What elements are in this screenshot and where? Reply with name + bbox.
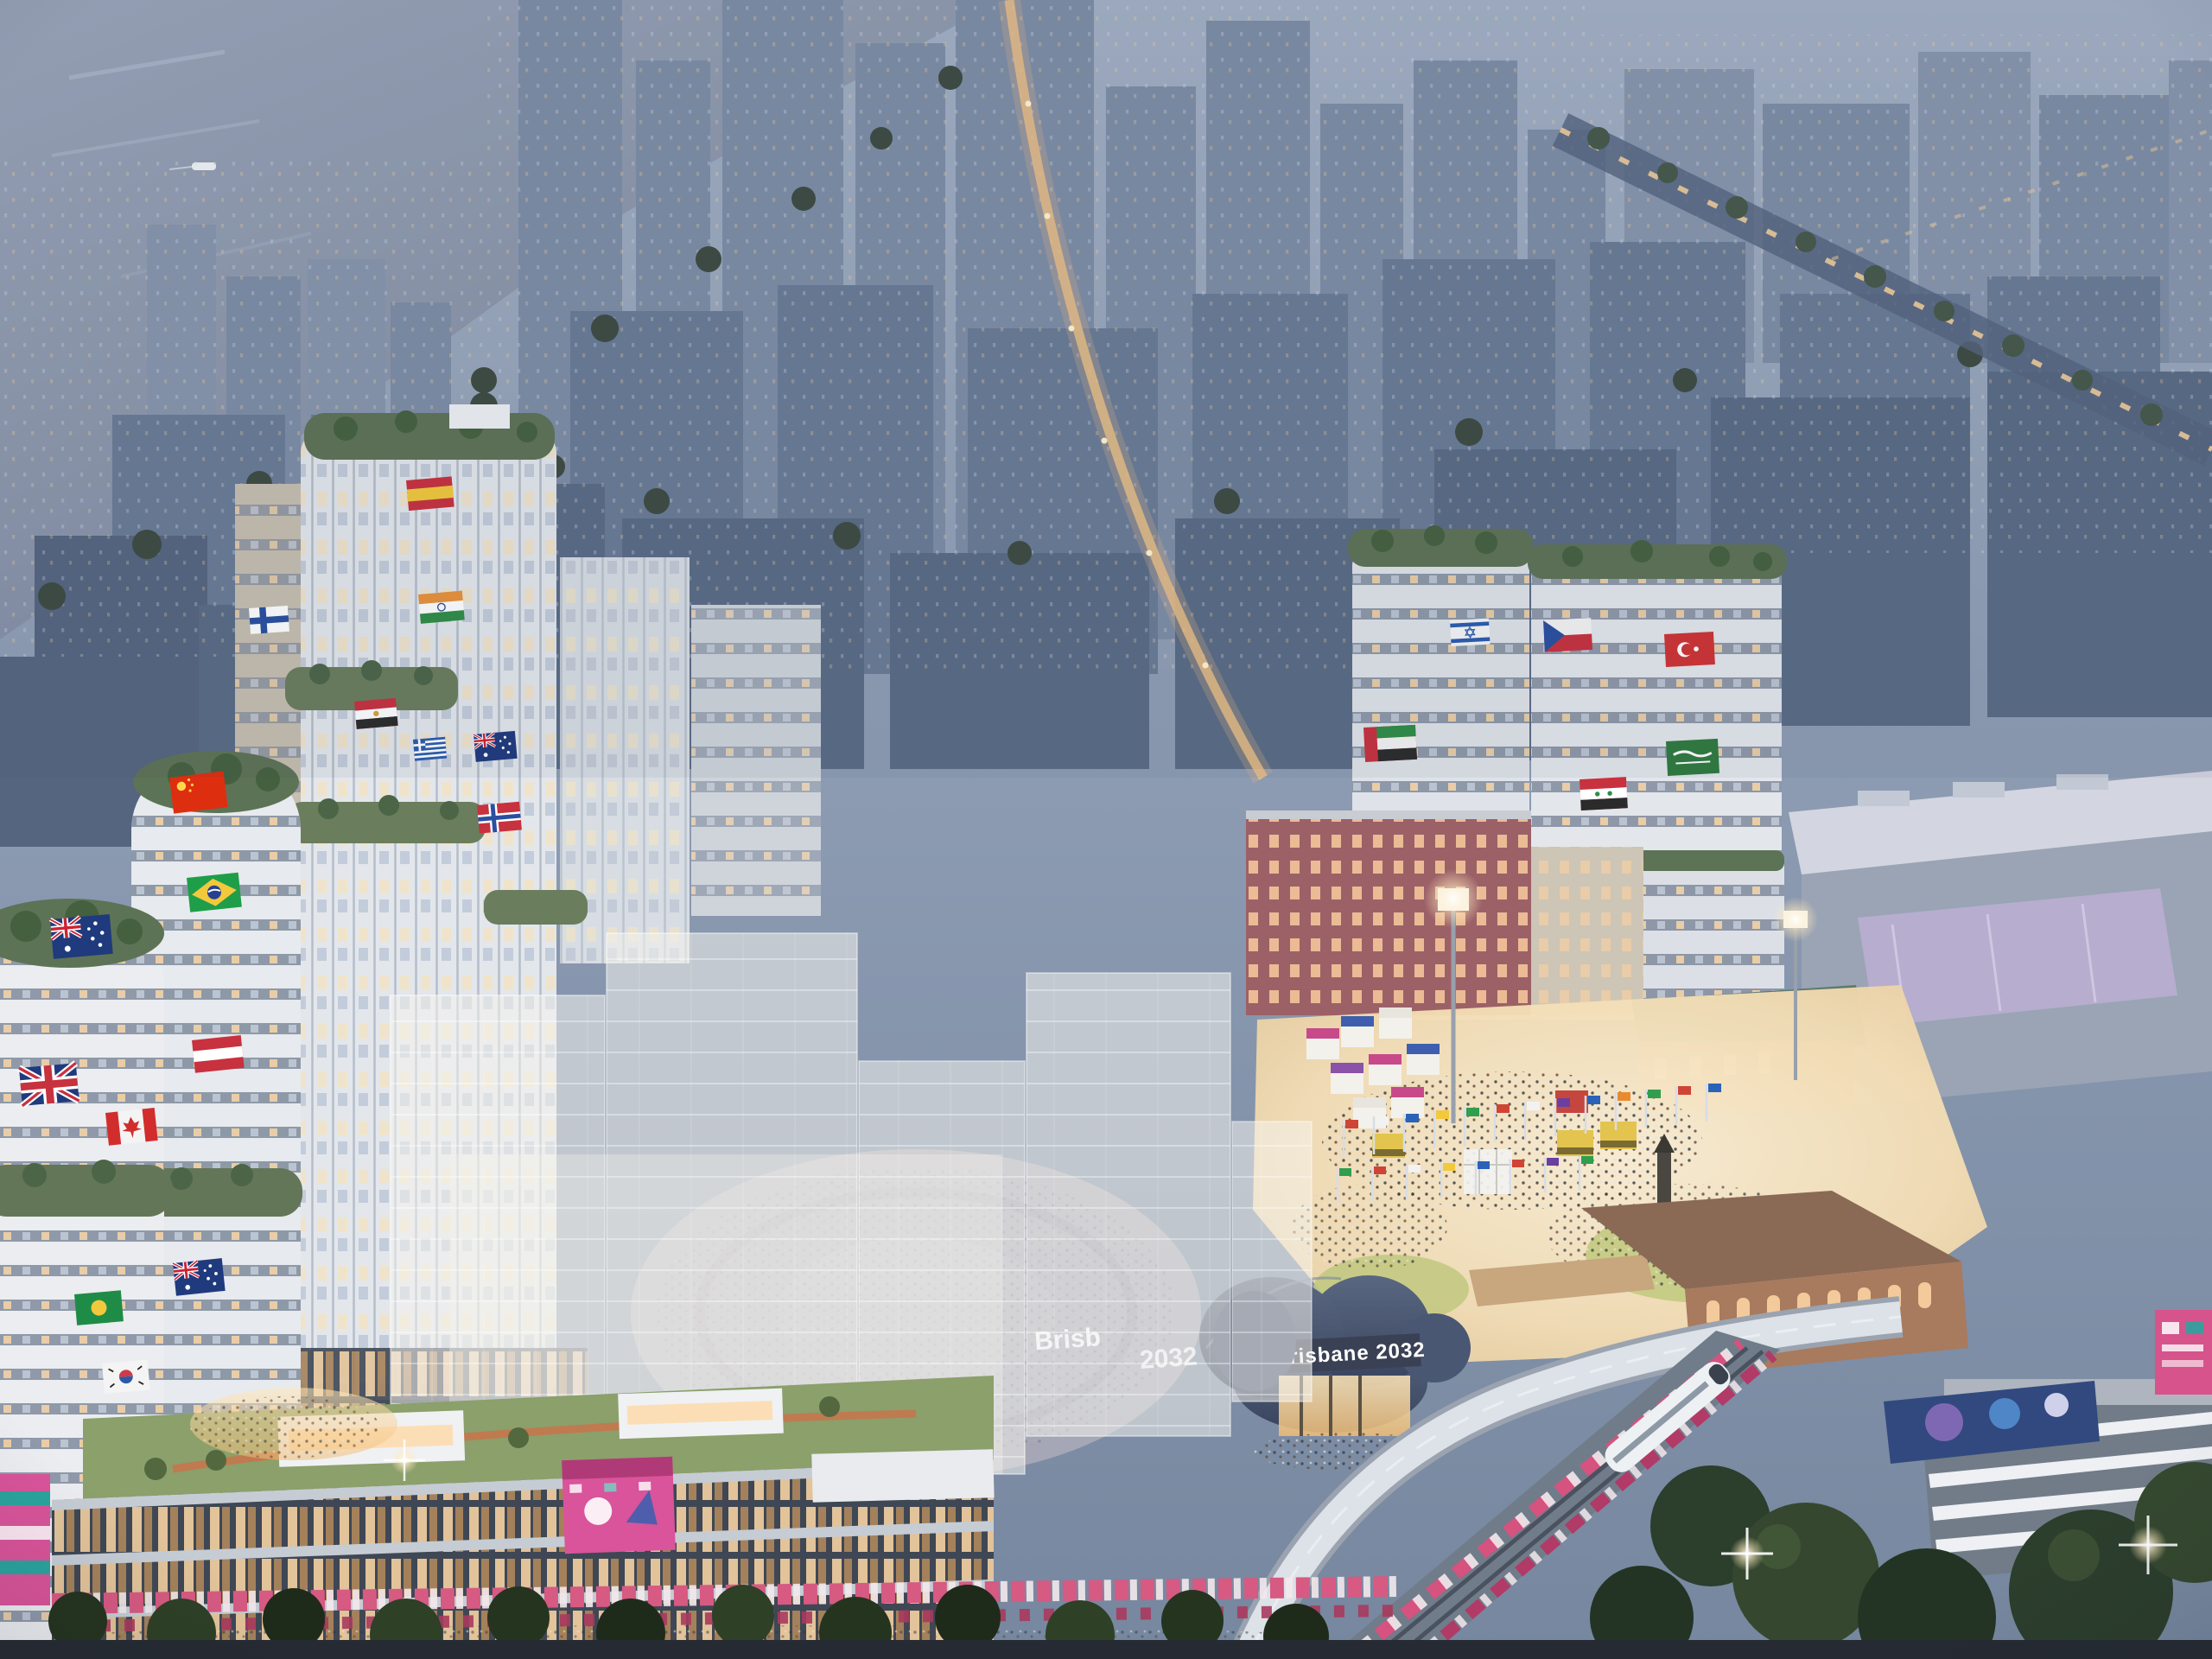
- aerial-render: Brisbane 2032 Brisb 2032: [0, 0, 2212, 1659]
- render-canvas: Brisbane 2032 Brisb 2032: [0, 0, 2212, 1659]
- vignette: [0, 0, 2212, 1659]
